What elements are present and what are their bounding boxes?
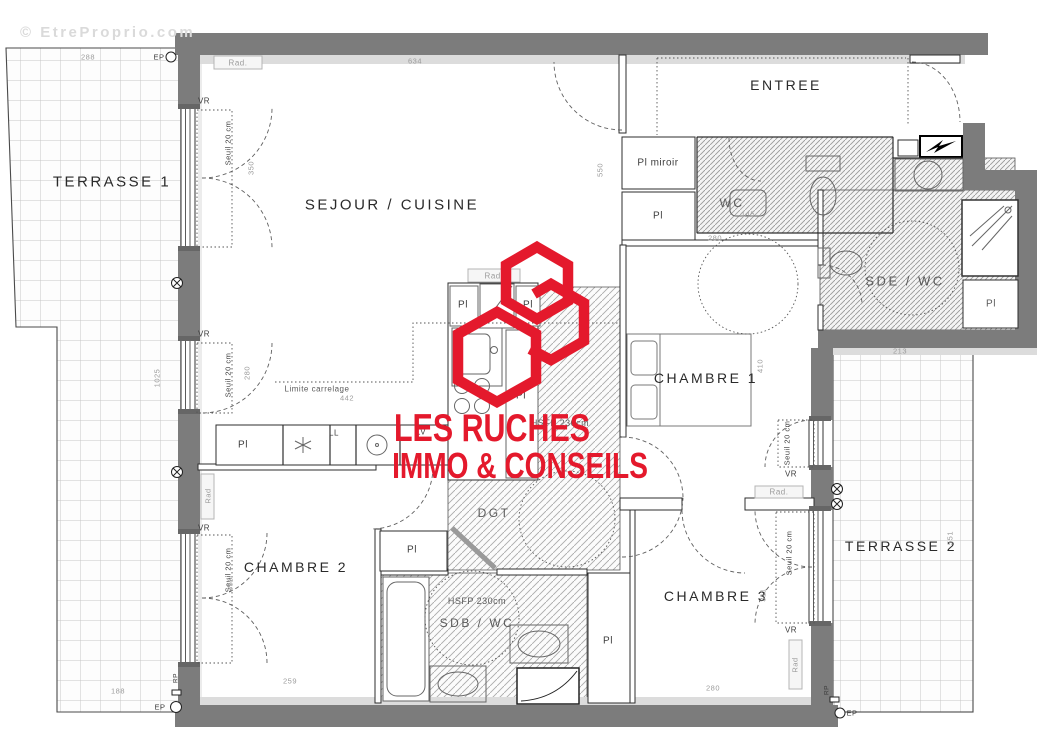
shower: [962, 200, 1018, 276]
window: [181, 108, 195, 247]
label-vr-4: VR: [785, 470, 797, 479]
dim-280-sejour: 280: [243, 366, 252, 380]
label-pl-entree: Pl: [653, 211, 663, 222]
room-label-wc: WC: [720, 196, 745, 210]
label-pl-sdb: Pl: [603, 636, 613, 647]
logo-text-line2: IMMO & CONSEILS: [392, 445, 648, 487]
shower-tray: [517, 668, 579, 704]
dim-280-chambre1: 280: [708, 234, 722, 243]
dim-311: 311: [759, 588, 768, 601]
room-label-chambre-2: CHAMBRE 2: [244, 559, 348, 575]
room-label-chambre-1: CHAMBRE 1: [654, 370, 758, 386]
label-vr-3: VR: [198, 524, 210, 533]
label-seuil-4: Seuil 20 cm: [783, 421, 792, 466]
bathtub: [383, 577, 429, 701]
label-rad-chambre3: Rad.: [770, 488, 789, 497]
window: [181, 340, 195, 410]
dim-634: 634: [408, 57, 422, 66]
dim-350-sejour: 350: [247, 161, 256, 175]
label-ll: LL: [329, 429, 339, 438]
chambre1-chambre3-wall-a: [620, 498, 682, 510]
floor-plan-page: © EtreProprio.com: [0, 0, 1040, 755]
dim-145: 145: [741, 210, 755, 219]
label-limite-carrelage: Limite carrelage: [285, 385, 350, 394]
dim-280-chambre3: 280: [706, 684, 720, 693]
rp-symbol: [830, 697, 839, 702]
turning-circle: [698, 234, 798, 334]
label-seuil-2: Seuil 20 cm: [224, 353, 233, 398]
label-ep-1: EP: [153, 53, 164, 62]
label-vr-1: VR: [198, 97, 210, 106]
label-pl-miroir: Pl miroir: [637, 158, 678, 169]
label-rad-chambre2: Rad: [204, 488, 213, 503]
entry-door-leaf: [910, 55, 960, 63]
chambre1-west-wall: [620, 245, 626, 437]
label-pl-sde: Pl: [986, 299, 996, 310]
label-rad-sejour: Rad.: [229, 59, 248, 68]
dim-442: 442: [340, 394, 354, 403]
label-pl-chambre2: Pl: [407, 545, 417, 556]
label-vr-2: VR: [198, 330, 210, 339]
window: [809, 420, 823, 467]
room-label-chambre-3: CHAMBRE 3: [664, 588, 768, 604]
ep-symbol: [166, 52, 176, 62]
dim-188: 188: [111, 687, 125, 696]
rp-symbol: [172, 690, 181, 695]
honeycomb-logo-icon: [440, 228, 610, 408]
label-vr-5: VR: [785, 626, 797, 635]
sde-west-wall-b: [818, 305, 823, 330]
label-rp-2: RP: [824, 685, 831, 695]
label-ep-3: EP: [846, 709, 857, 718]
site-watermark: © EtreProprio.com: [20, 24, 195, 41]
dim-410: 410: [756, 359, 765, 373]
dim-213: 213: [893, 347, 907, 356]
room-label-sde-wc: SDE / WC: [865, 274, 944, 289]
ep-symbol: [171, 702, 182, 713]
room-label-sejour-cuisine: SEJOUR / CUISINE: [305, 197, 479, 214]
dim-1025: 1025: [153, 369, 162, 388]
ep-symbol: [835, 708, 845, 718]
room-label-terrasse-1: TERRASSE 1: [53, 174, 171, 191]
sde-west-wall-a: [818, 190, 823, 265]
room-label-terrasse-2: TERRASSE 2: [845, 538, 957, 554]
dim-550: 550: [596, 163, 605, 177]
room-label-dgt: DGT: [478, 506, 511, 520]
room-label-sdb-wc: SDB / WC: [440, 616, 515, 630]
entree-zone-outline: [657, 58, 908, 135]
window: [809, 510, 823, 623]
chambre1-chambre3-wall-b: [745, 498, 814, 510]
dim-288: 288: [81, 53, 95, 62]
sdb-north-wall-b: [497, 569, 587, 575]
entree-sejour-wall: [619, 55, 626, 133]
window: [181, 533, 195, 663]
label-pl-kitchen-4: Pl: [238, 440, 248, 451]
dim-551: 551: [946, 531, 955, 545]
label-seuil-5: Seuil 20 cm: [785, 531, 794, 576]
entree-meter-box: [898, 140, 918, 156]
chambre3-west-wall: [630, 510, 635, 703]
label-hsfp-sdb: HSFP 230cm: [448, 596, 506, 606]
room-label-entree: ENTREE: [750, 77, 822, 93]
dim-350-chambre2: 350: [226, 577, 235, 591]
dim-259: 259: [283, 677, 297, 686]
label-rad-chambre3-b: Rad: [791, 657, 800, 672]
label-seuil-1: Seuil 20 cm: [224, 121, 233, 166]
label-rp-1: RP: [173, 673, 180, 683]
label-ep-2: EP: [154, 703, 165, 712]
